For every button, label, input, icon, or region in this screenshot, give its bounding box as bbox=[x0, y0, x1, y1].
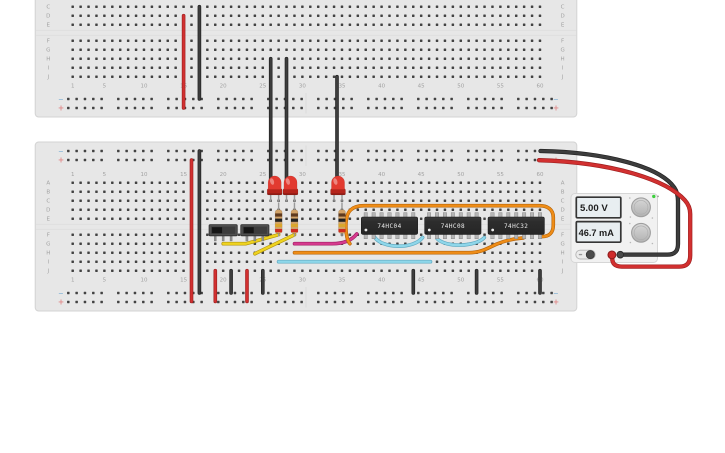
svg-text:C: C bbox=[46, 5, 50, 11]
ic-pin bbox=[475, 213, 478, 218]
resistor-band bbox=[275, 229, 282, 232]
ic-pin1-marker bbox=[428, 229, 431, 232]
current-value: 46.7 mA bbox=[579, 228, 615, 238]
positive-terminal[interactable] bbox=[608, 251, 616, 259]
switch-slider-knob[interactable] bbox=[212, 227, 222, 233]
ic-pin bbox=[467, 234, 470, 239]
ic-pin bbox=[467, 213, 470, 218]
svg-text:35: 35 bbox=[338, 277, 345, 283]
svg-text:1: 1 bbox=[71, 277, 75, 283]
svg-text:G: G bbox=[46, 242, 50, 248]
svg-text:45: 45 bbox=[418, 277, 425, 283]
ic-pin bbox=[412, 234, 415, 239]
ic-pin bbox=[364, 234, 367, 239]
svg-text:G: G bbox=[560, 48, 564, 54]
svg-text:−: − bbox=[58, 289, 63, 297]
ic-pin1-marker bbox=[365, 229, 368, 232]
ic-pin bbox=[388, 234, 391, 239]
svg-text:20: 20 bbox=[220, 277, 227, 283]
resistor-band bbox=[338, 229, 345, 232]
svg-text:D: D bbox=[560, 208, 564, 214]
svg-text:F: F bbox=[47, 233, 50, 239]
ic-pin bbox=[427, 234, 430, 239]
breadboards[interactable]: 1155101015152020252530303535404045455050… bbox=[35, 0, 577, 311]
svg-text:15: 15 bbox=[180, 277, 187, 283]
ic2-label: 74HC08 bbox=[441, 223, 465, 230]
ic-pin bbox=[380, 234, 383, 239]
ic-pin bbox=[522, 234, 525, 239]
svg-text:50: 50 bbox=[457, 172, 464, 178]
svg-text:20: 20 bbox=[220, 83, 227, 89]
ic-pin bbox=[530, 213, 533, 218]
ic-pin bbox=[396, 234, 399, 239]
ic-pin bbox=[515, 213, 518, 218]
voltage-display: 5.00 V bbox=[576, 197, 621, 218]
svg-text:E: E bbox=[47, 23, 51, 29]
svg-text:+: + bbox=[58, 155, 64, 164]
ic-pin bbox=[507, 213, 510, 218]
ic-pin bbox=[451, 213, 454, 218]
switch-slider-knob[interactable] bbox=[244, 227, 254, 233]
svg-text:C: C bbox=[561, 5, 565, 11]
svg-text:−: − bbox=[58, 147, 63, 155]
ic-pin bbox=[459, 234, 462, 239]
svg-text:45: 45 bbox=[418, 83, 425, 89]
resistor-band bbox=[338, 219, 345, 222]
ic-labels: 74HC04 74HC08 74HC32 bbox=[377, 223, 528, 230]
svg-text:G: G bbox=[46, 48, 50, 54]
resistor-band bbox=[275, 224, 282, 227]
resistor-band bbox=[291, 224, 298, 227]
ic-pin bbox=[380, 213, 383, 218]
resistor-band bbox=[275, 219, 282, 222]
svg-text:C: C bbox=[561, 199, 565, 205]
svg-text:60: 60 bbox=[536, 83, 543, 89]
ic-pin bbox=[372, 213, 375, 218]
svg-text:40: 40 bbox=[378, 172, 385, 178]
ic-pin bbox=[388, 213, 391, 218]
svg-text:E: E bbox=[561, 217, 565, 223]
svg-text:40: 40 bbox=[378, 83, 385, 89]
circuit-editor-canvas[interactable]: 1155101015152020252530303535404045455050… bbox=[0, 0, 725, 453]
svg-text:+: + bbox=[58, 103, 64, 112]
ic-pin bbox=[451, 234, 454, 239]
svg-text:F: F bbox=[47, 39, 50, 45]
svg-text:C: C bbox=[46, 199, 50, 205]
svg-text:60: 60 bbox=[536, 172, 543, 178]
ic-pin bbox=[412, 213, 415, 218]
ic-pin bbox=[475, 234, 478, 239]
svg-text:25: 25 bbox=[259, 83, 266, 89]
power-led-dot bbox=[657, 196, 659, 198]
svg-text:+: + bbox=[58, 297, 64, 306]
svg-text:40: 40 bbox=[378, 277, 385, 283]
svg-text:J: J bbox=[561, 269, 564, 275]
svg-text:J: J bbox=[46, 75, 49, 81]
svg-text:G: G bbox=[560, 242, 564, 248]
toggle-knob[interactable] bbox=[586, 251, 594, 259]
resistor-band bbox=[338, 224, 345, 227]
svg-text:F: F bbox=[561, 39, 564, 45]
svg-text:30: 30 bbox=[299, 277, 306, 283]
ic-pin bbox=[499, 234, 502, 239]
svg-text:5: 5 bbox=[103, 277, 107, 283]
ic-pin bbox=[372, 234, 375, 239]
svg-text:10: 10 bbox=[140, 172, 147, 178]
svg-text:1: 1 bbox=[71, 83, 75, 89]
ic-pin bbox=[530, 234, 533, 239]
svg-text:D: D bbox=[46, 208, 50, 214]
svg-text:35: 35 bbox=[338, 83, 345, 89]
svg-text:1: 1 bbox=[71, 172, 75, 178]
breadboard-top[interactable]: 1155101015152020252530303535404045455050… bbox=[35, 0, 577, 117]
svg-text:H: H bbox=[561, 251, 565, 257]
ic-pin bbox=[538, 234, 541, 239]
ic-pin bbox=[404, 213, 407, 218]
svg-text:+: + bbox=[553, 103, 559, 112]
svg-text:B: B bbox=[46, 0, 50, 2]
svg-text:−: − bbox=[58, 95, 63, 103]
svg-text:+: + bbox=[553, 297, 559, 306]
svg-text:E: E bbox=[561, 23, 565, 29]
ic-pin bbox=[499, 213, 502, 218]
ic-pin bbox=[435, 234, 438, 239]
svg-text:D: D bbox=[46, 14, 50, 20]
resistor-band bbox=[275, 213, 282, 216]
knob-tick bbox=[652, 217, 654, 219]
svg-text:H: H bbox=[46, 251, 50, 257]
svg-text:A: A bbox=[46, 181, 50, 187]
svg-text:15: 15 bbox=[180, 172, 187, 178]
svg-text:5: 5 bbox=[103, 83, 107, 89]
knob-tick bbox=[629, 223, 631, 225]
knob-tick bbox=[652, 243, 654, 245]
svg-text:5: 5 bbox=[103, 172, 107, 178]
knob-tick bbox=[629, 197, 631, 199]
svg-text:D: D bbox=[560, 14, 564, 20]
resistor-band bbox=[291, 229, 298, 232]
ic-pin1-marker bbox=[491, 229, 494, 232]
ic-pin bbox=[507, 234, 510, 239]
voltage-value: 5.00 V bbox=[580, 203, 608, 214]
svg-text:H: H bbox=[561, 57, 565, 63]
knob-tick bbox=[630, 216, 632, 218]
circuit-scene: 1155101015152020252530303535404045455050… bbox=[0, 0, 725, 453]
ic-pin bbox=[491, 213, 494, 218]
svg-text:E: E bbox=[47, 217, 51, 223]
resistor-band bbox=[338, 213, 345, 216]
svg-text:45: 45 bbox=[418, 172, 425, 178]
toggle-off-mark bbox=[579, 254, 582, 255]
svg-text:−: − bbox=[553, 289, 558, 297]
ic-pin bbox=[435, 213, 438, 218]
ic-pin bbox=[491, 234, 494, 239]
ic-pin bbox=[364, 213, 367, 218]
svg-text:10: 10 bbox=[140, 277, 147, 283]
svg-text:A: A bbox=[561, 181, 565, 187]
current-display: 46.7 mA bbox=[576, 222, 621, 243]
svg-text:B: B bbox=[561, 190, 565, 196]
svg-text:55: 55 bbox=[497, 172, 504, 178]
resistor-band bbox=[291, 213, 298, 216]
power-led-indicator bbox=[652, 195, 655, 198]
ic-pin bbox=[443, 213, 446, 218]
ic-pin bbox=[427, 213, 430, 218]
svg-text:20: 20 bbox=[220, 172, 227, 178]
negative-terminal[interactable] bbox=[617, 251, 624, 258]
svg-text:F: F bbox=[561, 233, 564, 239]
svg-text:25: 25 bbox=[259, 172, 266, 178]
ic3-label: 74HC32 bbox=[504, 223, 528, 230]
ic-pin bbox=[538, 213, 541, 218]
resistor-band bbox=[291, 219, 298, 222]
ic-pin bbox=[522, 213, 525, 218]
svg-text:B: B bbox=[561, 0, 565, 2]
svg-text:50: 50 bbox=[457, 277, 464, 283]
ic-pin bbox=[459, 213, 462, 218]
ic-pin bbox=[396, 213, 399, 218]
ic1-label: 74HC04 bbox=[377, 223, 401, 230]
power-toggle[interactable] bbox=[576, 250, 595, 259]
svg-text:J: J bbox=[46, 269, 49, 275]
svg-text:55: 55 bbox=[497, 277, 504, 283]
svg-text:50: 50 bbox=[457, 83, 464, 89]
ic-pin bbox=[404, 234, 407, 239]
ic-pin bbox=[443, 234, 446, 239]
svg-text:30: 30 bbox=[299, 172, 306, 178]
knob-tick bbox=[630, 242, 632, 244]
svg-text:J: J bbox=[561, 75, 564, 81]
svg-text:H: H bbox=[46, 57, 50, 63]
svg-text:30: 30 bbox=[299, 83, 306, 89]
svg-text:10: 10 bbox=[140, 83, 147, 89]
svg-text:−: − bbox=[553, 95, 558, 103]
svg-text:B: B bbox=[46, 190, 50, 196]
ic-pin bbox=[515, 234, 518, 239]
svg-text:55: 55 bbox=[497, 83, 504, 89]
